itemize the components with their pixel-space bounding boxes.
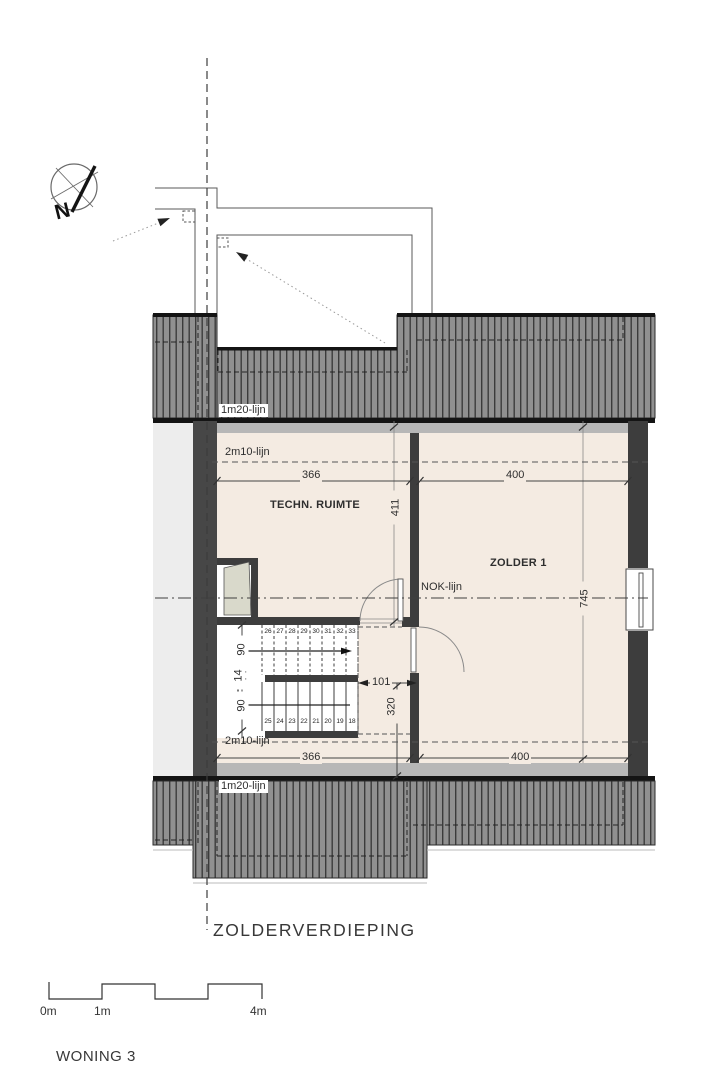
scale-label-1m: 1m xyxy=(94,1004,111,1018)
dim-411: 411 xyxy=(390,491,403,525)
partition-wall-lower xyxy=(410,673,419,763)
step-number: 25 xyxy=(262,718,274,726)
floor-plan-drawing xyxy=(0,0,718,1080)
window xyxy=(626,569,653,630)
dim-366-bottom: 366 xyxy=(300,751,322,764)
dim-101-door: 101 xyxy=(370,676,392,689)
floor-plan-sheet: N 1m20-lijn 2m10-lijn TECHN. RUIMTE ZOLD… xyxy=(0,0,718,1080)
gray-band-top xyxy=(217,423,628,433)
step-number: 27 xyxy=(274,628,286,636)
techn-door-leaf xyxy=(398,579,403,621)
scale-label-0m: 0m xyxy=(40,1004,57,1018)
step-number: 20 xyxy=(322,718,334,726)
step-number: 19 xyxy=(334,718,346,726)
neighbor-strip xyxy=(153,423,193,778)
label-2m10-bottom: 2m10-lijn xyxy=(225,735,270,748)
dim-90-lower: 90 xyxy=(236,692,249,720)
dim-320: 320 xyxy=(386,690,399,724)
step-number: 18 xyxy=(346,718,358,726)
step-number: 31 xyxy=(322,628,334,636)
gray-band-bottom xyxy=(217,763,628,776)
label-1m20-bottom: 1m20-lijn xyxy=(219,780,268,793)
label-1m20-top: 1m20-lijn xyxy=(219,404,268,417)
label-2m10-top: 2m10-lijn xyxy=(225,446,270,459)
scale-bar xyxy=(49,982,262,999)
zolder-door-leaf xyxy=(411,628,416,672)
partition-wall-upper xyxy=(410,433,419,617)
step-number: 29 xyxy=(298,628,310,636)
project-label: WONING 3 xyxy=(56,1048,136,1065)
drain-arrowhead-left xyxy=(157,218,170,226)
dim-14-gap: 14 xyxy=(233,662,246,690)
dim-90-upper: 90 xyxy=(236,636,249,664)
step-number: 22 xyxy=(298,718,310,726)
dim-400-bottom: 400 xyxy=(509,751,531,764)
step-number: 26 xyxy=(262,628,274,636)
step-number: 24 xyxy=(274,718,286,726)
partition-wall-block xyxy=(402,617,419,627)
label-nok-lijn: NOK-lijn xyxy=(421,581,462,594)
dim-366-top: 366 xyxy=(300,469,322,482)
step-number: 21 xyxy=(310,718,322,726)
right-wall-upper xyxy=(628,421,648,568)
dim-745: 745 xyxy=(579,582,592,616)
step-number: 33 xyxy=(346,628,358,636)
upper-outline xyxy=(155,188,432,315)
scale-label-4m: 4m xyxy=(250,1004,267,1018)
room-label-zolder-1: ZOLDER 1 xyxy=(490,557,547,570)
duct-shaft xyxy=(217,562,251,617)
shaft-wall-right xyxy=(251,558,258,622)
dim-400-top: 400 xyxy=(504,469,526,482)
step-number: 28 xyxy=(286,628,298,636)
room-label-techn-ruimte: TECHN. RUIMTE xyxy=(270,499,360,512)
step-number: 30 xyxy=(310,628,322,636)
stairwell-wall-top xyxy=(217,617,360,625)
step-number: 23 xyxy=(286,718,298,726)
drawing-title: ZOLDERVERDIEPING xyxy=(213,920,416,941)
step-number: 32 xyxy=(334,628,346,636)
drain-arrowhead-dormer xyxy=(236,252,248,262)
